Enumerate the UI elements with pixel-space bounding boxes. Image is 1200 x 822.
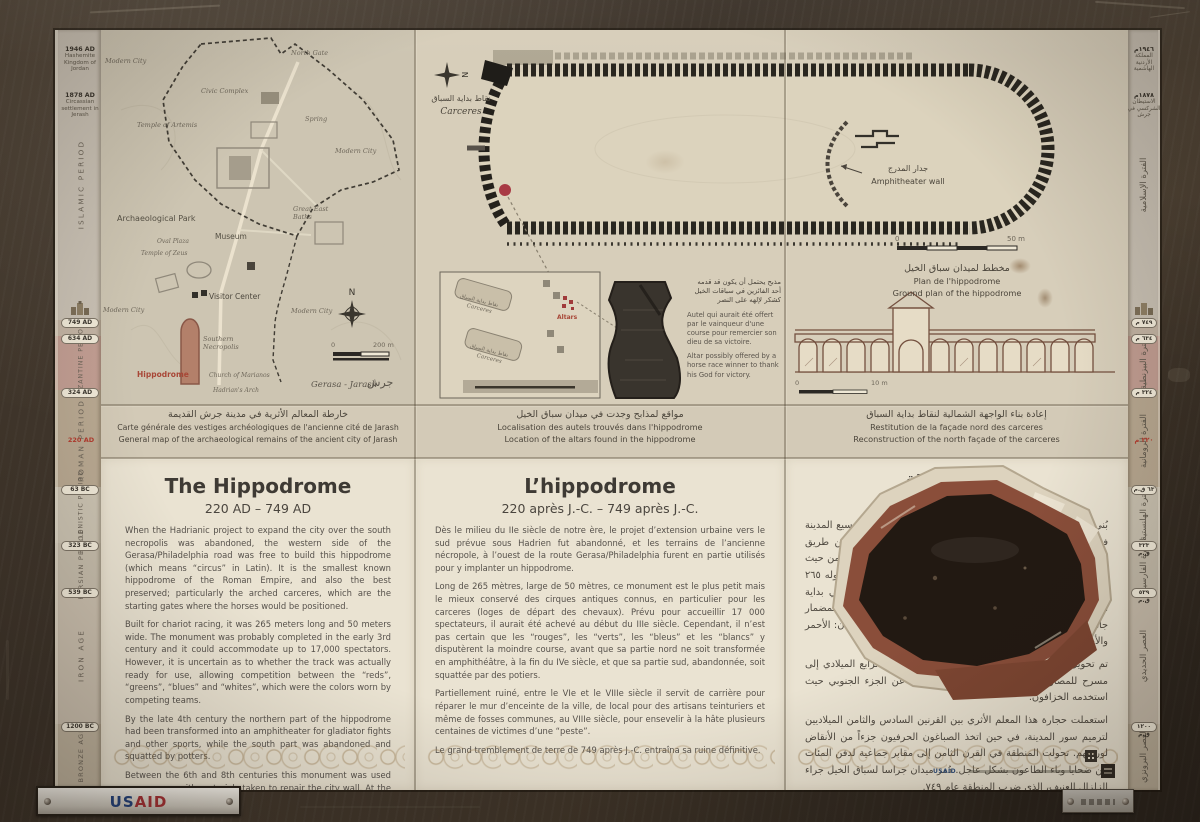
plan-wall-label-en: Amphitheater wall [855,177,961,187]
french-paragraph: Partiellement ruiné, entre le VIe et le … [435,687,765,737]
french-body: Dès le milieu du IIe siècle de notre ère… [435,524,765,756]
map-caption: خارطة المعالم الأثرية في مدينة جرش القدي… [103,408,413,445]
map-label-temple-of-artemis: Temple of Artemis [137,122,197,130]
period-label-bronze-age: BRONZE AGE [77,695,85,790]
event-label: Hashemite Kingdom of Jordan [59,53,101,73]
event-label: Circassian settlement in Jerash [59,99,101,119]
english-paragraph: Built for chariot racing, it was 265 met… [125,618,391,706]
frame-scratch [90,5,220,14]
map-label-north-gate: North Gate [291,50,328,58]
sign-photo: 1946 AD Hashemite Kingdom of Jordan 1878… [0,0,1200,822]
map-caption-ar: خارطة المعالم الأثرية في مدينة جرش القدي… [103,408,413,422]
plan-carceres-label: Carceres [417,107,505,118]
plan-compass-icon [434,62,460,88]
usaid-logo-aid: AID [135,793,168,811]
timeline-marker: ٦٣ ق.م [1131,485,1157,495]
timeline-marker: ٧٤٩ م [1131,318,1157,328]
timeline-left: 1946 AD Hashemite Kingdom of Jordan 1878… [55,30,101,790]
french-paragraph: Dès le milieu du IIe siècle de notre ère… [435,524,765,574]
map-label-oval-plaza: Oval Plaza [157,238,189,245]
map-label-visitor-center: Visitor Center [209,292,260,301]
timeline-event: ١٩٤٦م المملكة الأردنية الهاشمية [1127,46,1160,73]
map-label-museum: Museum [215,232,247,241]
period-label-bronze-age-ar: العصر البرونزي [1139,696,1149,790]
map-label-southern-necropolis: Southern Necropolis [203,336,251,352]
screw-icon [1122,798,1129,805]
altars-caption-ar: مواقع لمذابح وجدت في ميدان سباق الخيل [435,408,765,422]
map-label-great-east-baths: Great East Baths [293,206,339,222]
timeline-marker: 324 AD [61,388,99,398]
map-label-modern-city: Modern City [103,307,144,315]
timeline-marker: ١٢٠٠ ق.م [1131,722,1157,732]
event-date: ١٩٤٦م [1127,46,1160,53]
map-label-modern-city: Modern City [335,148,376,156]
timeline-event: ١٨٧٨م الاستيطان الشركسي في جرش [1127,92,1160,119]
arabic-paragraph: تم تحويل الجزء الشمالي من الميدان في أوا… [805,657,1108,707]
frame-scratch [1150,11,1190,18]
usaid-small-logo: USAID [933,768,956,775]
tile-seam [101,404,1128,406]
plan-wall-label-ar: جدار المدرج [863,164,953,174]
usaid-plaque: USAID [36,786,241,816]
plan-caption-en: Ground plan of the hippodrome [837,288,1077,300]
map-label-civic-complex: Civic Complex [201,88,248,96]
arabic-title: ميدان السباق [805,472,1108,492]
ministry-logo [1101,764,1115,778]
floral-border [425,736,775,778]
hippodrome-plan-tile: نقاط بداية السباق Carceres N جدار المدرج… [415,30,1128,405]
period-label-islamic-ar: الفترة الإسلامية [1139,125,1149,245]
altars-label: Altars [557,314,577,321]
french-paragraph: Long de 265 mètres, large de 50 mètres, … [435,580,765,681]
citadel-icon [69,300,91,315]
timeline-marker: ٦٣٤ م [1131,334,1157,344]
map-place-name-arabic: جرش [367,376,393,389]
timeline-marker: 634 AD [61,334,99,344]
information-panel: 1946 AD Hashemite Kingdom of Jordan 1878… [55,30,1160,790]
tile-seam [101,457,1128,459]
arabic-text-panel: ميدان السباق ٢٢٠ – ٧٤٩ ميلادي بُني ميدان… [785,458,1128,790]
english-paragraph: When the Hadrianic project to expand the… [125,524,391,612]
plan-scale-zero: 0 [895,235,899,243]
english-dates: 220 AD – 749 AD [125,501,391,516]
qr-code-icon [1085,750,1097,762]
french-text-panel: L’hippodrome 220 après J.-C. – 749 après… [415,458,785,790]
screw-icon [44,798,51,805]
arabic-paragraph: بُني ميدان جراسا لسباق الخيل عندما تم ال… [805,518,1108,651]
event-date: 1946 AD [59,46,101,53]
timeline-marker: ٣٢٣ ق.م [1131,541,1157,551]
event-date: 1878 AD [59,92,101,99]
altar-note-fr: Autel qui aurait été offert par le vainq… [687,311,781,348]
screw-icon [1067,798,1074,805]
period-label-islamic: ISLAMIC PERIOD [77,125,86,245]
altars-caption-fr: Localisation des autels trouvés dans l'h… [435,422,765,434]
altars-caption: مواقع لمذابح وجدت في ميدان سباق الخيل Lo… [435,408,765,446]
map-label-modern-city: Modern City [291,308,332,316]
plan-caption-fr: Plan de l'hippodrome [837,276,1077,288]
facade-caption-ar: إعادة بناء الواجهة الشمالية لنقاط بداية … [795,408,1118,422]
map-scale-max: 200 m [373,342,394,350]
facade-caption-fr: Restitution de la façade nord des carcer… [795,422,1118,434]
english-title: The Hippodrome [125,474,391,498]
map-caption-en: General map of the archaeological remain… [103,434,413,445]
event-date: ١٨٧٨م [1127,92,1160,99]
frame-scratch [300,806,480,808]
plan-scale-max: 50 m [1007,235,1025,243]
timeline-event: 1878 AD Circassian settlement in Jerash [59,92,101,119]
partner-logo [1037,770,1089,773]
altars-caption-en: Location of the altars found in the hipp… [435,434,765,446]
map-label-spring: Spring [305,116,327,124]
map-label-archaeological-park: Archaeological Park [117,214,196,224]
facade-scale-max: 10 m [871,380,888,388]
facade-caption: إعادة بناء الواجهة الشمالية لنقاط بداية … [795,408,1118,446]
map-label-church-of-marianos: Church of Marianos [209,372,270,379]
map-label-temple-of-zeus: Temple of Zeus [141,250,187,257]
floral-border [111,736,405,778]
altar-note-ar: مذبح يحتمل أن يكون قد قدمه أحد الفائزين … [687,278,781,306]
frame-scratch [6,640,9,700]
event-label: المملكة الأردنية الهاشمية [1127,53,1160,73]
plan-caption-ar: مخطط لميدان سباق الخيل [837,262,1077,276]
tile-seam [784,30,786,790]
french-title: L’hippodrome [435,474,765,498]
map-compass-label: N [347,288,357,299]
citadel-icon [1133,300,1155,315]
arabic-dates: ٢٢٠ – ٧٤٩ ميلادي [805,495,1108,510]
map-scale-zero: 0 [331,342,335,350]
timeline-marker: 323 BC [61,541,99,551]
facade-caption-en: Reconstruction of the north façade of th… [795,434,1118,446]
timeline-marker: ٣٢٤ م [1131,388,1157,398]
event-label: الاستيطان الشركسي في جرش [1127,99,1160,119]
map-label-hadrians-arch: Hadrian's Arch [213,387,259,394]
english-text-panel: The Hippodrome 220 AD – 749 AD When the … [101,458,415,790]
timeline-marker: 1200 BC [61,722,99,732]
engraved-text [1081,799,1115,805]
timeline-event: 1946 AD Hashemite Kingdom of Jordan [59,46,101,73]
plan-caption: مخطط لميدان سباق الخيل Plan de l'hippodr… [837,262,1077,300]
plan-scale-bar [897,246,1017,250]
french-dates: 220 après J.-C. – 749 après J.-C. [435,501,765,516]
plan-compass-label: N [461,70,471,80]
frame-scratch [1095,1,1185,9]
timeline-marker: 539 BC [61,588,99,598]
tile-seam [414,30,416,790]
timeline-marker: 749 AD [61,318,99,328]
usaid-logo-us: US [110,793,135,811]
partner-logo [969,770,1025,773]
map-caption-fr: Carte générale des vestiges archéologiqu… [103,422,413,433]
altar-note: مذبح يحتمل أن يكون قد قدمه أحد الفائزين … [687,278,781,385]
screw-icon [226,798,233,805]
highlight-date-220-ar: ٢٢٠ م [1128,436,1160,444]
altar-note-en: Altar possibly offered by a horse race w… [687,352,781,380]
metal-plaque [1062,789,1134,813]
facade-scale-zero: 0 [795,380,799,388]
frame-scratch [1168,368,1190,382]
map-label-modern-city: Modern City [105,58,146,66]
usaid-logo: USAID [110,792,168,811]
map-label-hippodrome: Hippodrome [137,370,189,379]
plan-carceres-label-ar: نقاط بداية السباق [417,94,505,104]
timeline-marker: 63 BC [61,485,99,495]
jerash-map: Modern City North Gate Civic Complex Spr… [101,30,415,405]
timeline-marker: ٥٣٩ ق.م [1131,588,1157,598]
highlight-date-220ad: 220 AD [58,436,104,444]
